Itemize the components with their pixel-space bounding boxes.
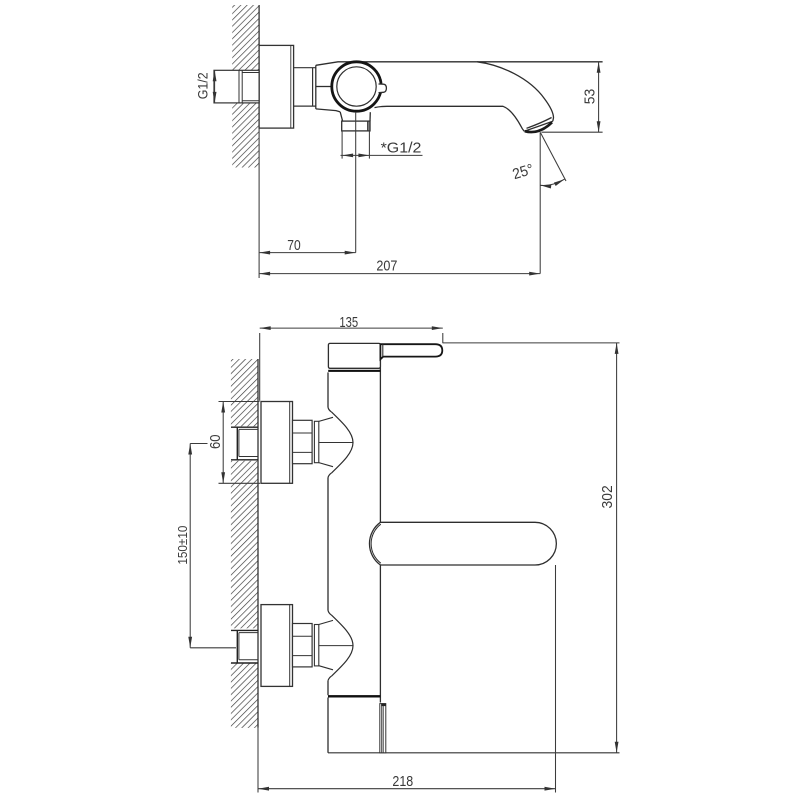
- svg-text:53: 53: [582, 89, 599, 105]
- svg-text:302: 302: [599, 485, 616, 508]
- svg-text:60: 60: [207, 434, 224, 449]
- svg-text:G1/2: G1/2: [196, 72, 211, 99]
- svg-text:*G1/2: *G1/2: [381, 139, 422, 156]
- svg-text:150±10: 150±10: [175, 526, 190, 565]
- svg-text:70: 70: [287, 237, 300, 254]
- svg-text:135: 135: [339, 314, 358, 331]
- svg-text:207: 207: [376, 257, 397, 274]
- svg-text:218: 218: [392, 773, 413, 790]
